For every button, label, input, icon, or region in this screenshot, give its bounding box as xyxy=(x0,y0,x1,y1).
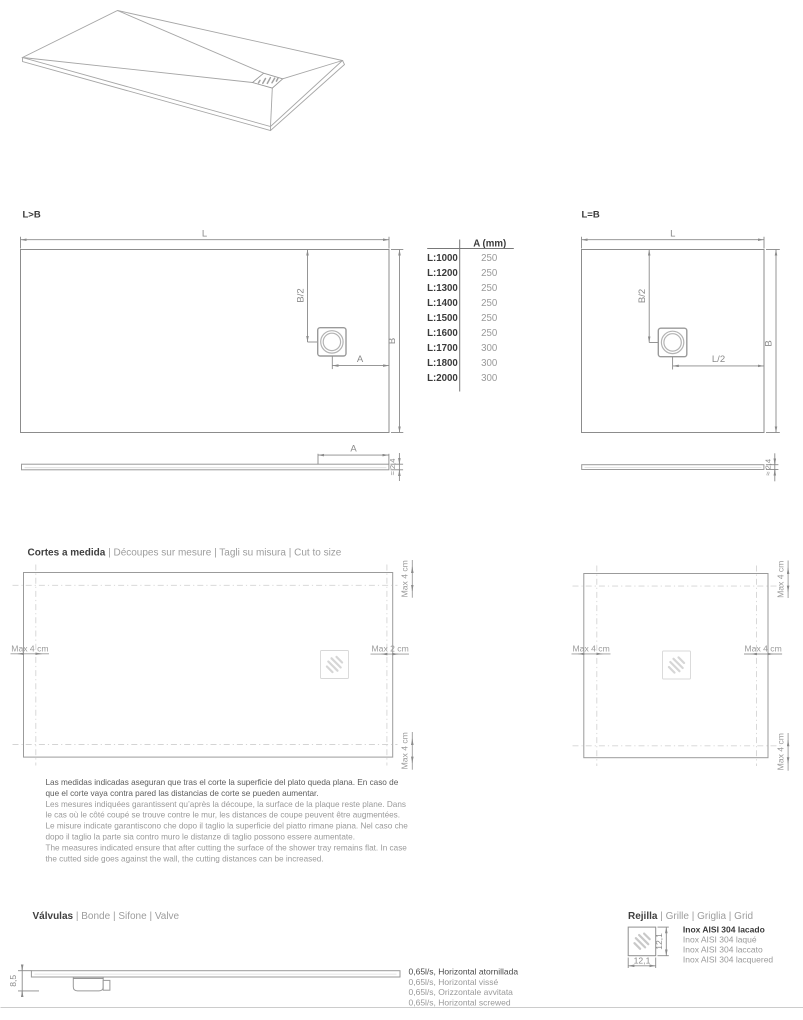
svg-text:Les mesures indiquées garantis: Les mesures indiquées garantissent qu’ap… xyxy=(46,800,406,809)
svg-text:L:1300: L:1300 xyxy=(427,283,458,294)
svg-text:Max 4 cm: Max 4 cm xyxy=(776,561,786,598)
svg-text:L:2000: L:2000 xyxy=(427,373,458,384)
svg-text:250: 250 xyxy=(481,313,498,324)
svg-text:Max 4 cm: Max 4 cm xyxy=(776,733,786,770)
svg-text:Inox AISI 304 laqué: Inox AISI 304 laqué xyxy=(683,935,757,945)
svg-text:L>B: L>B xyxy=(23,210,41,221)
svg-text:Le misure indicate garantiscon: Le misure indicate garantiscono che dopo… xyxy=(46,822,409,831)
svg-text:A: A xyxy=(350,443,357,454)
svg-text:0,65l/s, Horizontal screwed: 0,65l/s, Horizontal screwed xyxy=(409,997,511,1007)
svg-text:L/2: L/2 xyxy=(712,354,725,365)
svg-text:Inox AISI 304 lacado: Inox AISI 304 lacado xyxy=(683,925,765,935)
svg-text:Las medidas indicadas aseguran: Las medidas indicadas aseguran que tras … xyxy=(46,778,399,787)
svg-text:B/2: B/2 xyxy=(637,289,648,303)
svg-text:Max 4 cm: Max 4 cm xyxy=(400,732,410,769)
svg-text:L: L xyxy=(202,229,207,240)
svg-text:The measures indicated ensure: The measures indicated ensure that after… xyxy=(46,843,408,852)
svg-text:A (mm): A (mm) xyxy=(473,239,506,250)
svg-text:le cas où le côté coupé se tro: le cas où le côté coupé se trouve contre… xyxy=(46,811,401,820)
svg-text:Válvulas | Bonde | Sifone | Va: Válvulas | Bonde | Sifone | Valve xyxy=(33,911,180,922)
svg-text:Inox AISI 304 lacquered: Inox AISI 304 lacquered xyxy=(683,954,774,964)
svg-text:300: 300 xyxy=(481,358,498,369)
svg-text:250: 250 xyxy=(481,298,498,309)
svg-text:L: L xyxy=(670,229,675,240)
svg-text:L:1000: L:1000 xyxy=(427,253,458,264)
svg-text:250: 250 xyxy=(481,253,498,264)
svg-text:250: 250 xyxy=(481,328,498,339)
svg-text:Max 4 cm: Max 4 cm xyxy=(745,644,782,654)
svg-text:B/2: B/2 xyxy=(295,288,306,302)
svg-text:the cutted side goes against t: the cutted side goes against the wall, t… xyxy=(46,854,324,863)
svg-text:L:1800: L:1800 xyxy=(427,358,458,369)
svg-text:A: A xyxy=(357,354,364,365)
svg-text:L=B: L=B xyxy=(582,210,600,221)
svg-text:≈ 2,4: ≈ 2,4 xyxy=(763,459,772,476)
svg-text:Max 4 cm: Max 4 cm xyxy=(11,644,48,654)
svg-text:Max 4 cm: Max 4 cm xyxy=(573,644,610,654)
svg-text:300: 300 xyxy=(481,343,498,354)
svg-text:L:1200: L:1200 xyxy=(427,268,458,279)
svg-text:Cortes a medida | Découpes sur: Cortes a medida | Découpes sur mesure | … xyxy=(28,548,342,559)
svg-text:0,65l/s, Horizontal vissé: 0,65l/s, Horizontal vissé xyxy=(409,977,499,987)
svg-text:≈ 2,4: ≈ 2,4 xyxy=(388,459,397,476)
svg-text:0,65l/s, Horizontal atornillad: 0,65l/s, Horizontal atornillada xyxy=(409,967,519,977)
svg-text:0,65l/s, Orizzontale avvitata: 0,65l/s, Orizzontale avvitata xyxy=(409,987,514,997)
svg-text:250: 250 xyxy=(481,283,498,294)
svg-text:L:1500: L:1500 xyxy=(427,313,458,324)
svg-text:Rejilla | Grille | Griglia | G: Rejilla | Grille | Griglia | Grid xyxy=(628,911,753,922)
svg-text:8,5: 8,5 xyxy=(8,975,18,987)
svg-text:que el corte vaya contra pared: que el corte vaya contra pared las dista… xyxy=(46,789,319,798)
svg-text:Max 2 cm: Max 2 cm xyxy=(372,644,409,654)
svg-text:12,1: 12,1 xyxy=(654,933,664,950)
svg-text:250: 250 xyxy=(481,268,498,279)
svg-text:12,1: 12,1 xyxy=(634,956,651,966)
svg-text:L:1700: L:1700 xyxy=(427,343,458,354)
svg-text:B: B xyxy=(764,340,775,346)
svg-text:B: B xyxy=(387,338,398,344)
svg-text:300: 300 xyxy=(481,373,498,384)
svg-text:L:1600: L:1600 xyxy=(427,328,458,339)
svg-text:Max 4 cm: Max 4 cm xyxy=(400,560,410,597)
svg-text:L:1400: L:1400 xyxy=(427,298,458,309)
svg-text:dopo il taglio la parte sia co: dopo il taglio la parte sia contro muro … xyxy=(46,833,356,842)
svg-text:Inox AISI 304 laccato: Inox AISI 304 laccato xyxy=(683,944,763,954)
